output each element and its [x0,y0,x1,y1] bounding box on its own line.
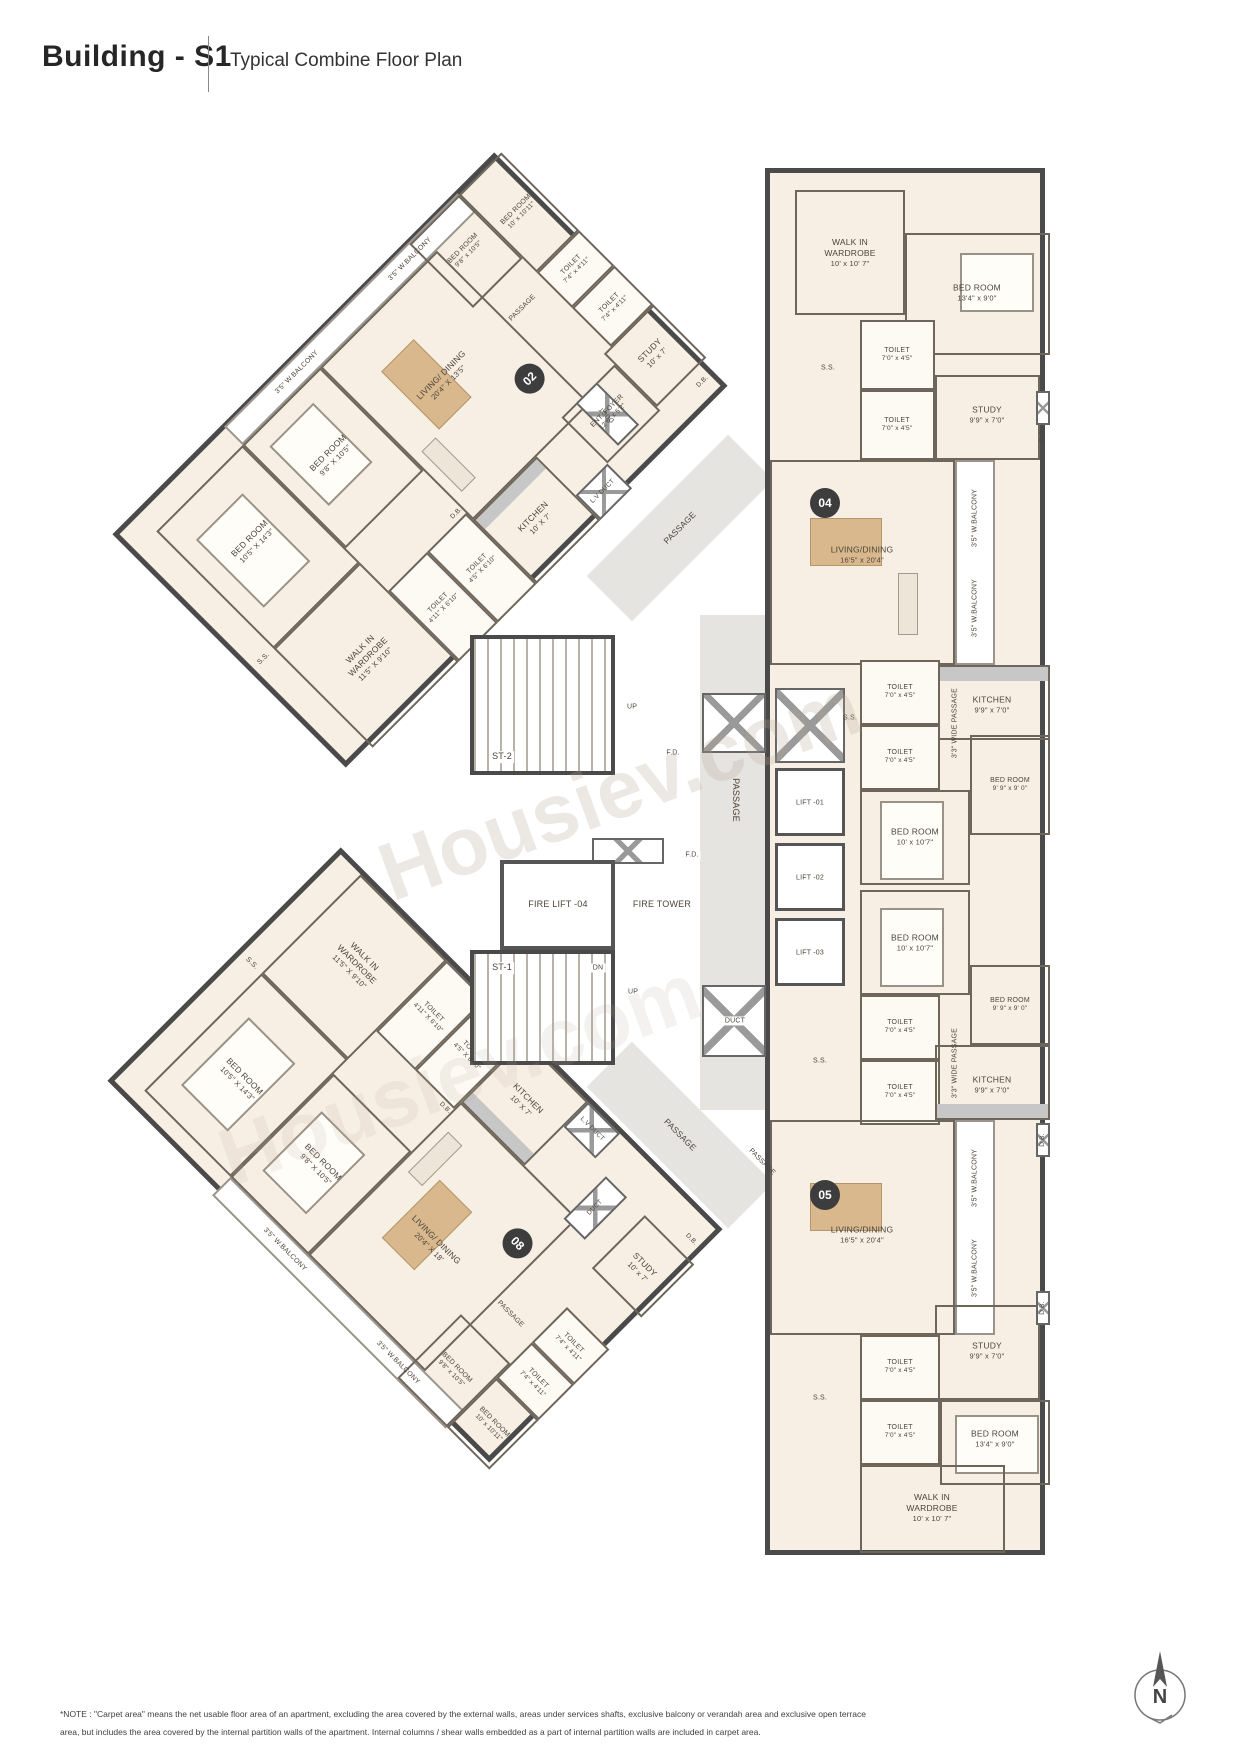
room-label-toilet: TOILET7'0" x 4'5" [882,346,913,364]
room-label-living-dining: LIVING/DINING16'5" x 20'4" [831,545,894,566]
room-label-toilet: TOILET7'0" x 4'5" [885,1358,916,1376]
stair-dn-label: DN [591,963,606,972]
compass-north-icon: N [1128,1645,1192,1731]
sofa-icon [898,573,918,635]
footer-note-line2: area, but includes the area covered by t… [60,1724,1120,1740]
passage-label: PASSAGE [729,778,741,822]
wide-passage-label: 3'3" WIDE PASSAGE [950,1028,959,1098]
svg-text:N: N [1153,1686,1167,1708]
room-label-living-dining: LIVING/DINING16'5" x 20'4" [831,1225,894,1246]
stair-up-label: UP [625,702,639,711]
passage-label: PASSAGE [495,1299,526,1330]
room-label-toilet: TOILET7'0" x 4'5" [885,748,916,766]
room-label-ss: S.S. [256,651,272,667]
room-label-study: STUDY9'9" x 7'0" [970,1341,1005,1362]
room-label-bedroom: BED ROOM10' x 10'7" [891,933,939,954]
room-label-db: D.B. [695,374,710,389]
room-label-ss: S.S. [243,955,259,971]
service-shaft-box [775,688,845,763]
fd-shaft-box [702,693,766,753]
balcony-label: 3'5" W.BALCONY [970,1149,979,1207]
fire-lift-label: FIRE LIFT -04 [526,899,590,911]
wing-unit-08: 3'5" W.BALCONY 3'5" W.BALCONY S.S. WALK … [107,847,722,1462]
room-label-bedroom: BED ROOM9' 9" x 9' 0" [990,996,1030,1014]
room-label-ss: S.S. [813,1393,827,1402]
page-title: Building - S1 [42,40,232,74]
room-label-db: D.B. [1039,1301,1047,1314]
footer-note-line1: *NOTE : "Carpet area" means the net usab… [60,1706,1120,1722]
page-subtitle: Typical Combine Floor Plan [230,50,462,72]
wing-unit-02: 3'5" W.BALCONY 3'5" W.BALCONY S.S. BED R… [112,152,727,767]
lift-2-label: LIFT -02 [796,873,824,882]
room-label-toilet: TOILET7'0" x 4'5" [885,683,916,701]
balcony-label: 3'5" W.BALCONY [970,1239,979,1297]
stair-label-st1: ST-1 [490,962,514,974]
balcony-label: 3'5" W.BALCONY [970,579,979,637]
fire-tower-label: FIRE TOWER [630,899,694,911]
passage-label: PASSAGE [661,1116,698,1153]
db-box [1036,391,1050,425]
lift-1-label: LIFT -01 [796,798,824,807]
room-label-ss: S.S. [843,713,857,722]
duct-label: DUCT [723,1016,747,1025]
kitchen-counter [937,667,1048,681]
room-label-bedroom: BED ROOM13'4" x 9'0" [953,283,1001,304]
stair-label-st2: ST-2 [490,751,514,763]
header-divider [208,36,209,92]
passage-label: PASSAGE [661,509,698,546]
kitchen-counter [937,1104,1048,1118]
lift-3-label: LIFT -03 [796,948,824,957]
room-label-toilet: TOILET7'0" x 4'5" [882,416,913,434]
passage-label: PASSAGE [507,293,538,324]
wide-passage-label: 3'3" WIDE PASSAGE [950,688,959,758]
room-label-toilet: TOILET7'0" x 4'5" [885,1423,916,1441]
room-label-bedroom: BED ROOM9' 9" x 9' 0" [990,776,1030,794]
room-label-study: STUDY9'9" x 7'0" [970,405,1005,426]
stair-up-label: UP [626,987,640,996]
room-label-walk-in-wardrobe: WALK IN WARDROBE10' x 10' 7" [818,237,882,269]
room-label-kitchen: KITCHEN9'9" x 7'0" [973,695,1012,716]
unit-badge-05: 05 [810,1180,840,1210]
room-label-ss: S.S. [813,1056,827,1065]
balcony-label: 3'5" W.BALCONY [970,489,979,547]
room-label-bedroom: BED ROOM13'4" x 9'0" [971,1429,1019,1450]
room-label-toilet: TOILET7'0" x 4'5" [885,1018,916,1036]
room-label-db: D.B. [1039,1133,1047,1146]
floor-plan-page: Building - S1 Typical Combine Floor Plan… [0,0,1241,1754]
unit-badge-04: 04 [810,488,840,518]
fd-label: F.D. [664,748,681,757]
room-label-db: D.B. [1039,428,1047,441]
room-label-toilet: TOILET7'0" x 4'5" [885,1083,916,1101]
room-label-bedroom: BED ROOM10' x 10'7" [891,827,939,848]
room-label-walk-in-wardrobe: WALK IN WARDROBE10' x 10' 7" [900,1492,964,1524]
room-label-ss: S.S. [821,363,835,372]
room-label-kitchen: KITCHEN9'9" x 7'0" [973,1075,1012,1096]
room-label-db: D.B. [683,1232,698,1247]
fd-label: F.D. [683,850,700,859]
